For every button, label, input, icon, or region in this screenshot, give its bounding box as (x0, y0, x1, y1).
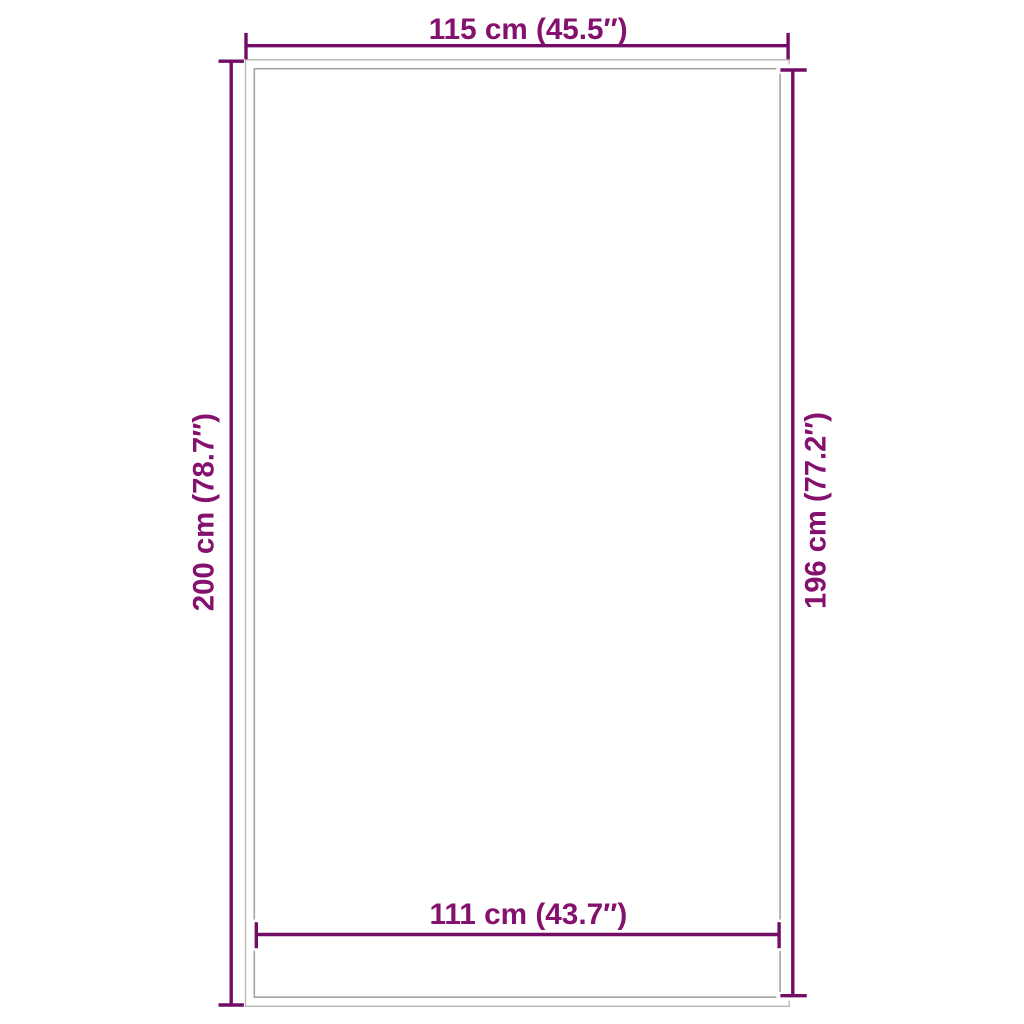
svg-text:115 cm (45.5″): 115 cm (45.5″) (429, 13, 628, 46)
svg-text:196 cm (77.2″): 196 cm (77.2″) (799, 412, 832, 609)
svg-text:111 cm (43.7″): 111 cm (43.7″) (429, 898, 627, 931)
svg-text:200 cm (78.7″): 200 cm (78.7″) (188, 413, 221, 611)
